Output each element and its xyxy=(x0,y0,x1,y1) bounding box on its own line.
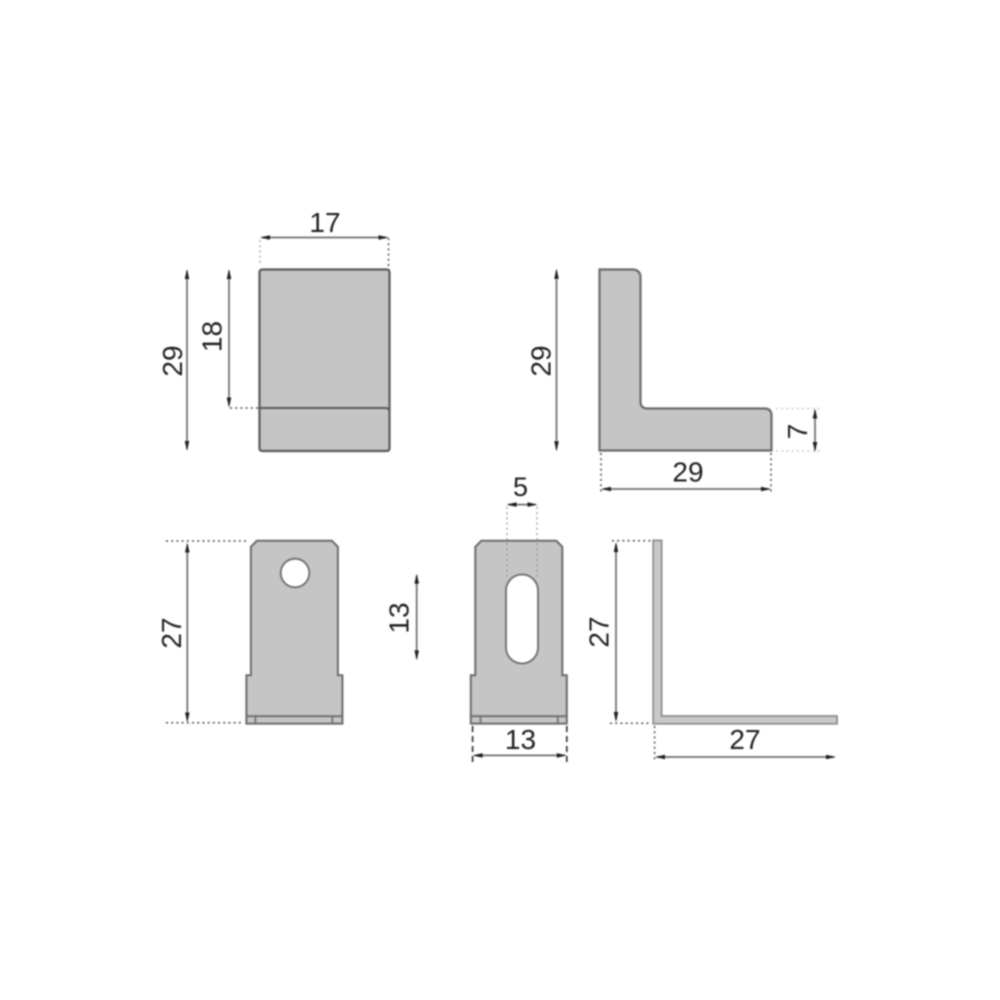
svg-text:13: 13 xyxy=(384,602,415,633)
svg-text:5: 5 xyxy=(513,472,528,502)
svg-text:18: 18 xyxy=(197,321,228,352)
svg-text:27: 27 xyxy=(156,617,187,648)
svg-text:29: 29 xyxy=(526,345,557,376)
svg-text:27: 27 xyxy=(584,616,615,647)
svg-text:29: 29 xyxy=(672,457,703,488)
svg-text:27: 27 xyxy=(729,724,760,755)
svg-text:29: 29 xyxy=(157,345,188,376)
svg-text:13: 13 xyxy=(505,724,536,755)
svg-text:17: 17 xyxy=(309,207,340,238)
svg-text:7: 7 xyxy=(782,424,813,440)
